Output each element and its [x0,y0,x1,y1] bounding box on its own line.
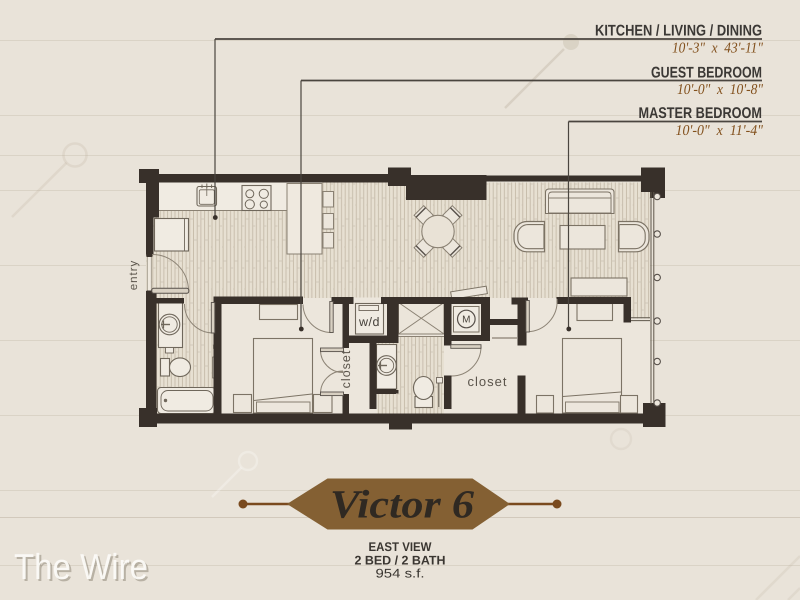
svg-text:2 BED / 2 BATH: 2 BED / 2 BATH [355,554,446,568]
svg-text:KITCHEN / LIVING / DINING: KITCHEN / LIVING / DINING [595,23,762,40]
svg-text:Victor 6: Victor 6 [330,482,474,527]
svg-text:The Wire: The Wire [14,546,148,587]
svg-text:954 s.f.: 954 s.f. [376,567,425,581]
svg-text:EAST VIEW: EAST VIEW [369,540,432,554]
svg-text:10'-0" x 11'-4": 10'-0" x 11'-4" [676,123,764,139]
svg-text:entry: entry [128,260,140,291]
svg-text:M: M [462,315,470,326]
svg-text:closet: closet [339,350,353,389]
svg-text:w/d: w/d [358,315,380,329]
svg-text:10'-3" x 43'-11": 10'-3" x 43'-11" [672,41,764,57]
svg-text:10'-0" x 10'-8": 10'-0" x 10'-8" [677,82,764,98]
svg-text:closet: closet [468,374,508,389]
svg-text:GUEST BEDROOM: GUEST BEDROOM [651,65,762,82]
svg-text:MASTER BEDROOM: MASTER BEDROOM [639,105,763,122]
